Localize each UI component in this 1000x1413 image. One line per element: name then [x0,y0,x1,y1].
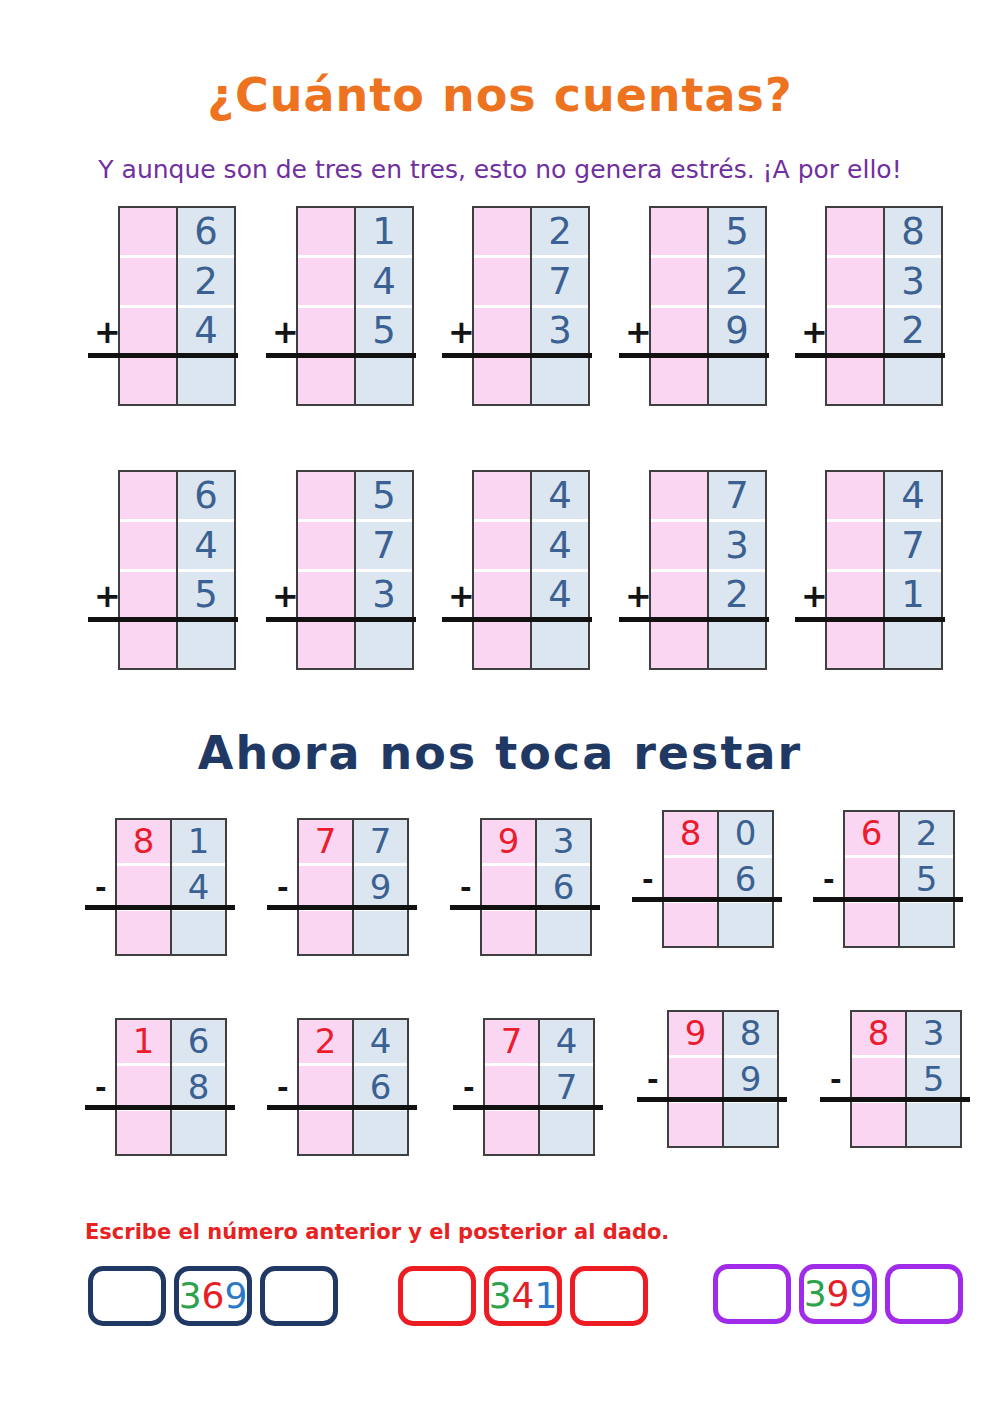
borrow-cell[interactable] [485,1063,538,1109]
digit: 9 [669,1012,722,1055]
answer-line [442,617,592,622]
digit: 8 [117,820,170,863]
borrow-cell[interactable] [852,1055,905,1101]
answer-line [267,1105,417,1110]
answer-line [88,353,238,358]
subtraction-problem-2: - 7 7 9 [267,818,417,956]
digit: 8 [724,1012,777,1055]
carry-cell[interactable] [474,569,530,619]
addition-problem-7: + 5 7 3 [266,470,416,670]
answer-cell[interactable] [664,900,717,946]
answer-cell[interactable] [537,908,590,954]
page-title: ¿Cuánto nos cuentas? [0,68,1000,122]
answer-cell[interactable] [172,1108,225,1154]
carry-cell[interactable] [298,255,354,305]
answer-cell[interactable] [172,908,225,954]
minus-sign: - [823,866,835,894]
next-number-box[interactable] [885,1264,963,1324]
digit: 8 [852,1012,905,1055]
carry-cell[interactable] [298,569,354,619]
subtraction-problem-7: - 2 4 6 [267,1018,417,1156]
digit: 2 [709,255,765,305]
digit: 1 [885,569,941,619]
answer-cell[interactable] [482,908,535,954]
digit: 2 [709,569,765,619]
borrow-cell[interactable] [845,855,898,901]
answer-line [88,617,238,622]
digit: 1 [172,820,225,863]
digit: 6 [354,1063,407,1109]
subtraction-table: 2 4 6 [297,1018,409,1156]
answer-cell[interactable] [651,618,707,668]
carry-cell[interactable] [120,208,176,255]
carry-cell[interactable] [651,519,707,569]
subtraction-table: 9 3 6 [480,818,592,956]
digit: 5 [356,472,412,519]
digit: 6 [537,863,590,909]
subtraction-table: 9 8 9 [667,1010,779,1148]
digit: 3 [885,255,941,305]
carry-cell[interactable] [298,305,354,355]
digit: 9 [224,1278,247,1314]
borrow-cell[interactable] [299,1063,352,1109]
addition-problem-5: + 8 3 2 [795,206,945,406]
digit: 0 [719,812,772,855]
answer-cell[interactable] [178,618,234,668]
addition-problem-10: + 4 7 1 [795,470,945,670]
digit: 3 [804,1276,827,1312]
answer-cell[interactable] [669,1100,722,1146]
subtraction-table: 7 7 9 [297,818,409,956]
plus-sign: + [448,580,475,612]
borrow-cell[interactable] [482,863,535,909]
digit: 1 [356,208,412,255]
answer-cell[interactable] [120,618,176,668]
addition-table: 1 4 5 [296,206,414,406]
digit: 6 [202,1278,225,1314]
digit: 3 [907,1012,960,1055]
answer-line [85,905,235,910]
subtraction-problem-3: - 9 3 6 [450,818,600,956]
page-subtitle: Y aunque son de tres en tres, esto no ge… [0,155,1000,184]
answer-cell[interactable] [845,900,898,946]
digit: 3 [356,569,412,619]
answer-line [795,617,945,622]
digit: 6 [845,812,898,855]
digit: 9 [482,820,535,863]
digit: 4 [172,863,225,909]
digit: 2 [178,255,234,305]
subtraction-problem-5: - 6 2 5 [813,810,963,948]
plus-sign: + [94,316,121,348]
previous-number-box[interactable] [713,1264,791,1324]
answer-cell[interactable] [117,908,170,954]
answer-line [619,617,769,622]
digit: 7 [532,255,588,305]
answer-cell[interactable] [117,1108,170,1154]
subtraction-table: 6 2 5 [843,810,955,948]
plus-sign: + [448,316,475,348]
answer-cell[interactable] [354,1108,407,1154]
digit: 1 [534,1278,557,1314]
borrow-cell[interactable] [669,1055,722,1101]
carry-cell[interactable] [474,472,530,519]
carry-cell[interactable] [298,208,354,255]
worksheet-page: ¿Cuánto nos cuentas? Y aunque son de tre… [0,0,1000,1413]
subtraction-problem-9: - 9 8 9 [637,1010,787,1148]
minus-sign: - [95,874,107,902]
plus-sign: + [625,580,652,612]
digit: 3 [179,1278,202,1314]
digit: 5 [709,208,765,255]
digit: 9 [724,1055,777,1101]
digit: 4 [354,1020,407,1063]
borrow-cell[interactable] [117,863,170,909]
digit: 7 [540,1063,593,1109]
carry-cell[interactable] [120,305,176,355]
previous-number-box[interactable] [398,1266,476,1326]
answer-line [619,353,769,358]
plus-sign: + [801,316,828,348]
answer-cell[interactable] [907,1100,960,1146]
addition-table: 5 7 3 [296,470,414,670]
addition-problem-1: + 6 2 4 [88,206,238,406]
addition-table: 7 3 2 [649,470,767,670]
minus-sign: - [830,1066,842,1094]
addition-table: 6 2 4 [118,206,236,406]
digit: 8 [664,812,717,855]
next-number-box[interactable] [260,1266,338,1326]
digit: 1 [117,1020,170,1063]
carry-cell[interactable] [827,255,883,305]
carry-cell[interactable] [474,208,530,255]
next-number-box[interactable] [570,1266,648,1326]
subtraction-problem-4: - 8 0 6 [632,810,782,948]
carry-cell[interactable] [651,208,707,255]
carry-cell[interactable] [474,519,530,569]
answer-cell[interactable] [651,354,707,404]
answer-cell[interactable] [540,1108,593,1154]
given-number-box: 3 4 1 [484,1266,562,1326]
carry-cell[interactable] [474,305,530,355]
plus-sign: + [272,580,299,612]
answer-cell[interactable] [298,618,354,668]
carry-cell[interactable] [298,519,354,569]
subtraction-table: 1 6 8 [115,1018,227,1156]
given-number-box: 3 9 9 [799,1264,877,1324]
digit: 6 [178,208,234,255]
number-group-369: 3 6 9 [88,1266,338,1326]
digit: 7 [299,820,352,863]
carry-cell[interactable] [827,472,883,519]
digit: 2 [532,208,588,255]
minus-sign: - [460,874,472,902]
carry-cell[interactable] [651,255,707,305]
answer-line [820,1097,970,1102]
carry-cell[interactable] [298,472,354,519]
subtraction-problem-6: - 1 6 8 [85,1018,235,1156]
carry-cell[interactable] [827,519,883,569]
carry-cell[interactable] [651,472,707,519]
addition-table: 8 3 2 [825,206,943,406]
answer-line [453,1105,603,1110]
digit: 4 [532,569,588,619]
carry-cell[interactable] [120,472,176,519]
digit: 2 [299,1020,352,1063]
given-number-box: 3 6 9 [174,1266,252,1326]
borrow-cell[interactable] [299,863,352,909]
plus-sign: + [625,316,652,348]
answer-cell[interactable] [474,618,530,668]
digit: 7 [485,1020,538,1063]
addition-table: 4 7 1 [825,470,943,670]
digit: 5 [356,305,412,355]
answer-cell[interactable] [299,908,352,954]
answer-cell[interactable] [120,354,176,404]
digit: 4 [532,472,588,519]
digit: 4 [178,519,234,569]
answer-line [442,353,592,358]
digit: 4 [540,1020,593,1063]
addition-problem-2: + 1 4 5 [266,206,416,406]
borrow-cell[interactable] [664,855,717,901]
digit: 9 [709,305,765,355]
answer-line [85,1105,235,1110]
digit: 7 [709,472,765,519]
digit: 3 [537,820,590,863]
addition-problem-4: + 5 2 9 [619,206,769,406]
addition-problem-9: + 7 3 2 [619,470,769,670]
digit: 4 [356,255,412,305]
answer-cell[interactable] [532,618,588,668]
carry-cell[interactable] [120,519,176,569]
digit: 4 [178,305,234,355]
plus-sign: + [94,580,121,612]
digit: 9 [849,1276,872,1312]
answer-cell[interactable] [532,354,588,404]
answer-line [266,353,416,358]
answer-cell[interactable] [299,1108,352,1154]
answer-line [813,897,963,902]
digit: 4 [512,1278,535,1314]
minus-sign: - [463,1074,475,1102]
carry-cell[interactable] [827,305,883,355]
answer-cell[interactable] [885,618,941,668]
subtraction-table: 8 3 5 [850,1010,962,1148]
answer-cell[interactable] [709,354,765,404]
answer-line [266,617,416,622]
carry-cell[interactable] [651,305,707,355]
minus-sign: - [95,1074,107,1102]
subtraction-heading: Ahora nos toca restar [0,726,1000,780]
addition-table: 5 2 9 [649,206,767,406]
minus-sign: - [277,1074,289,1102]
digit: 3 [532,305,588,355]
digit: 4 [532,519,588,569]
carry-cell[interactable] [651,569,707,619]
number-group-399: 3 9 9 [713,1264,963,1324]
borrow-cell[interactable] [117,1063,170,1109]
addition-problem-3: + 2 7 3 [442,206,592,406]
answer-cell[interactable] [178,354,234,404]
digit: 3 [709,519,765,569]
answer-line [637,1097,787,1102]
digit: 6 [719,855,772,901]
number-group-341: 3 4 1 [398,1266,648,1326]
answer-line [632,897,782,902]
digit: 6 [172,1020,225,1063]
answer-cell[interactable] [298,354,354,404]
answer-cell[interactable] [827,618,883,668]
digit: 9 [354,863,407,909]
subtraction-problem-8: - 7 4 7 [453,1018,603,1156]
answer-cell[interactable] [474,354,530,404]
answer-cell[interactable] [709,618,765,668]
answer-cell[interactable] [724,1100,777,1146]
answer-line [267,905,417,910]
minus-sign: - [647,1066,659,1094]
answer-cell[interactable] [900,900,953,946]
subtraction-problem-10: - 8 3 5 [820,1010,970,1148]
carry-cell[interactable] [474,255,530,305]
subtraction-table: 8 0 6 [662,810,774,948]
digit: 9 [827,1276,850,1312]
answer-cell[interactable] [485,1108,538,1154]
subtraction-problem-1: - 8 1 4 [85,818,235,956]
addition-table: 6 4 5 [118,470,236,670]
digit: 7 [885,519,941,569]
carry-cell[interactable] [827,208,883,255]
answer-cell[interactable] [356,618,412,668]
digit: 8 [885,208,941,255]
answer-cell[interactable] [356,354,412,404]
minus-sign: - [642,866,654,894]
addition-problem-8: + 4 4 4 [442,470,592,670]
digit: 3 [489,1278,512,1314]
digit: 5 [900,855,953,901]
subtraction-table: 7 4 7 [483,1018,595,1156]
subtraction-table: 8 1 4 [115,818,227,956]
digit: 6 [178,472,234,519]
addition-problem-6: + 6 4 5 [88,470,238,670]
previous-number-box[interactable] [88,1266,166,1326]
carry-cell[interactable] [120,569,176,619]
digit: 8 [172,1063,225,1109]
digit: 2 [900,812,953,855]
digit: 5 [907,1055,960,1101]
digit: 7 [354,820,407,863]
answer-cell[interactable] [827,354,883,404]
number-line-instruction: Escribe el número anterior y el posterio… [85,1220,669,1244]
answer-line [450,905,600,910]
addition-table: 4 4 4 [472,470,590,670]
plus-sign: + [801,580,828,612]
answer-cell[interactable] [852,1100,905,1146]
carry-cell[interactable] [827,569,883,619]
carry-cell[interactable] [120,255,176,305]
answer-cell[interactable] [885,354,941,404]
answer-cell[interactable] [354,908,407,954]
digit: 5 [178,569,234,619]
digit: 2 [885,305,941,355]
digit: 7 [356,519,412,569]
answer-cell[interactable] [719,900,772,946]
plus-sign: + [272,316,299,348]
addition-table: 2 7 3 [472,206,590,406]
answer-line [795,353,945,358]
digit: 4 [885,472,941,519]
minus-sign: - [277,874,289,902]
